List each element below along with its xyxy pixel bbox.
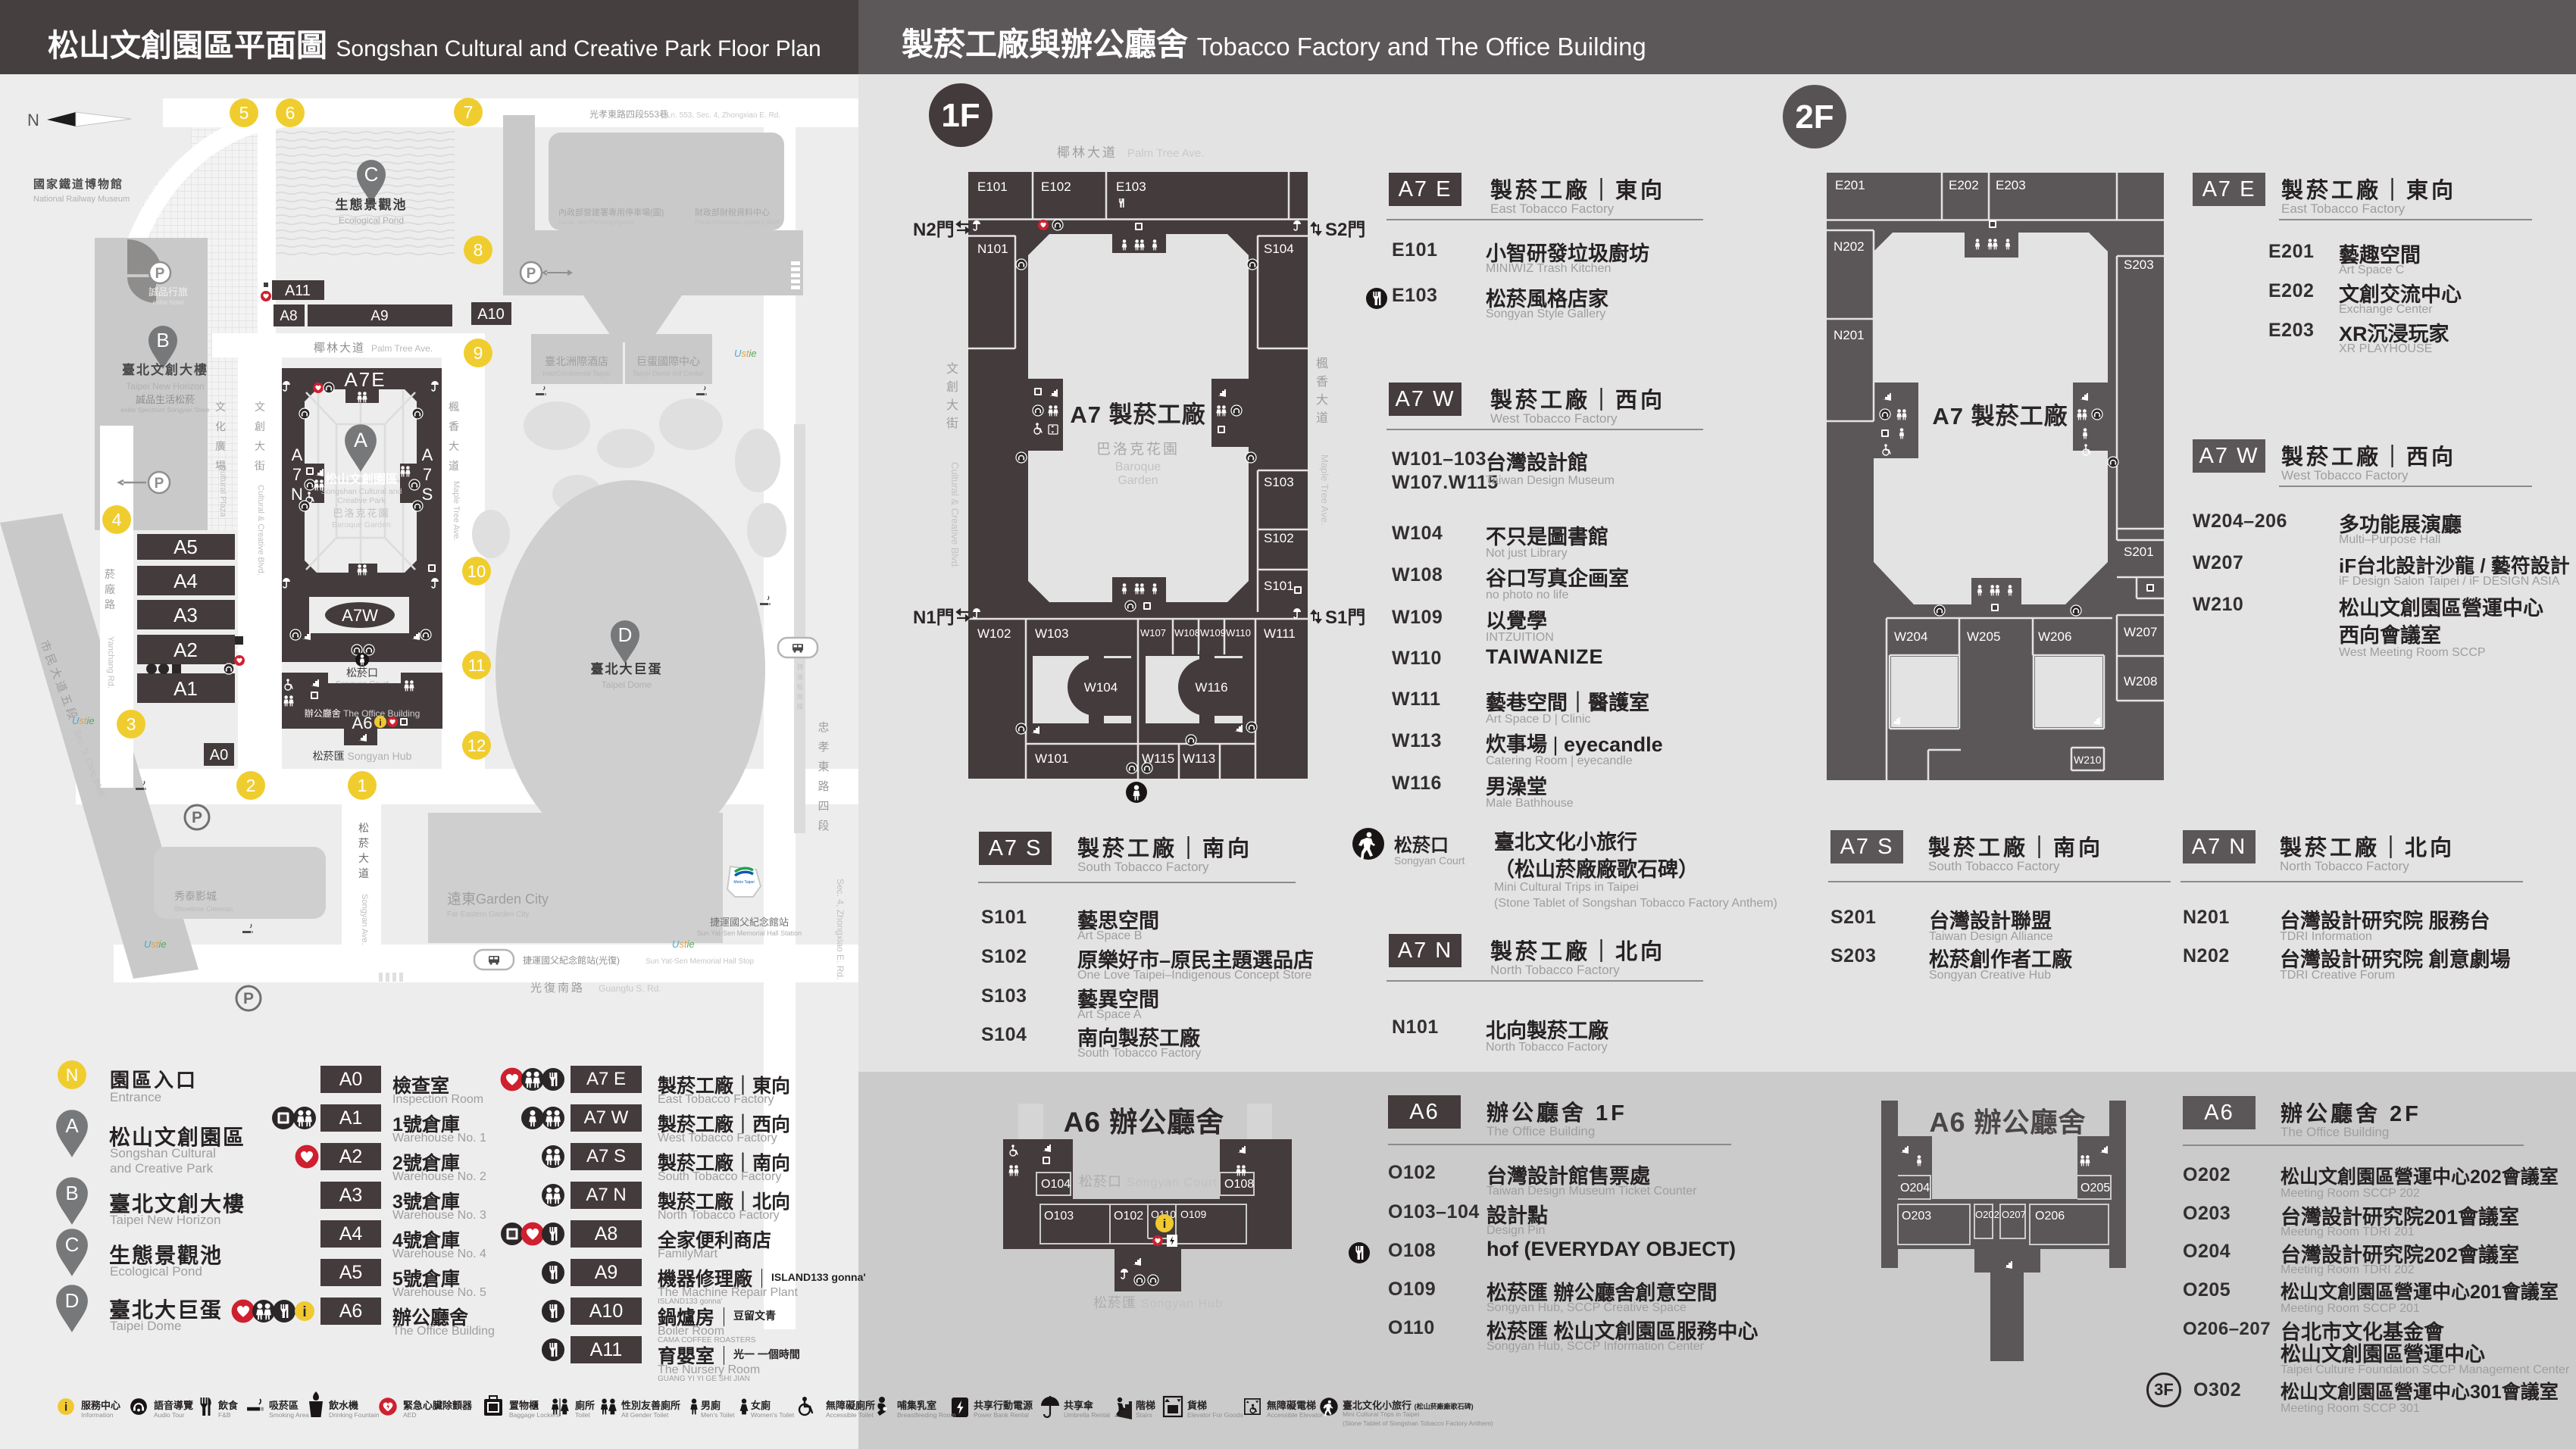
svg-text:Creative Park: Creative Park (337, 496, 386, 505)
svg-text:松菸匯 Songyan Hub: 松菸匯 Songyan Hub (313, 750, 412, 762)
svg-text:i: i (64, 1401, 67, 1413)
svg-text:捷: 捷 (796, 663, 803, 671)
svg-text:A: A (422, 445, 433, 464)
svg-text:大: 大 (1316, 393, 1328, 407)
svg-text:文: 文 (255, 401, 265, 413)
svg-text:C: C (364, 163, 379, 186)
svg-text:楓: 楓 (449, 401, 459, 413)
svg-text:Ustie: Ustie (72, 715, 95, 726)
svg-text:5: 5 (239, 103, 249, 123)
svg-text:E203: E203 (1996, 178, 2026, 192)
svg-text:2F: 2F (1795, 98, 1834, 136)
svg-text:Showtime Cinemas: Showtime Cinemas (174, 905, 233, 913)
svg-text:遠東Garden City: 遠東Garden City (447, 891, 549, 907)
svg-text:A7 製菸工廠: A7 製菸工廠 (1932, 403, 2068, 429)
svg-text:8: 8 (474, 240, 483, 260)
svg-text:Cultural & Creative Blvd.: Cultural & Creative Blvd. (949, 462, 961, 570)
svg-text:Cultural & Creative Blvd.: Cultural & Creative Blvd. (256, 485, 265, 576)
svg-text:Songshan Cultural and: Songshan Cultural and (321, 487, 402, 496)
svg-text:A7E: A7E (344, 368, 386, 391)
svg-text:A4: A4 (174, 570, 198, 592)
svg-text:O204: O204 (1900, 1182, 1930, 1194)
svg-text:臺北文創大樓: 臺北文創大樓 (122, 362, 208, 377)
svg-text:10: 10 (467, 562, 486, 581)
svg-text:Metro Taipei: Metro Taipei (733, 880, 754, 885)
svg-text:N101: N101 (977, 242, 1008, 256)
svg-text:A8: A8 (280, 308, 297, 324)
svg-text:文: 文 (215, 401, 226, 413)
svg-text:W204: W204 (1894, 629, 1927, 644)
svg-text:7: 7 (464, 102, 474, 122)
svg-text:香: 香 (449, 420, 459, 433)
svg-text:線: 線 (796, 702, 803, 710)
svg-text:道: 道 (358, 867, 369, 879)
svg-text:6: 6 (286, 103, 295, 123)
svg-text:4: 4 (112, 510, 122, 529)
svg-text:松: 松 (358, 822, 369, 834)
svg-text:臺北大巨蛋: 臺北大巨蛋 (591, 661, 663, 676)
svg-text:O108: O108 (1224, 1178, 1254, 1191)
svg-text:W102: W102 (977, 626, 1011, 641)
svg-text:W101: W101 (1035, 751, 1068, 766)
svg-text:Fiscal Information Agency, MOF: Fiscal Information Agency, MOF (695, 219, 780, 226)
svg-text:D: D (65, 1289, 80, 1312)
svg-text:A10: A10 (477, 306, 505, 323)
svg-text:Taipei New Horizon: Taipei New Horizon (126, 381, 204, 392)
svg-text:W109: W109 (1200, 627, 1226, 639)
svg-text:E201: E201 (1835, 178, 1865, 192)
svg-text:Maple Tree Ave.: Maple Tree Ave. (452, 481, 461, 541)
svg-text:O109: O109 (1180, 1208, 1206, 1220)
svg-text:Maple Tree Ave.: Maple Tree Ave. (1319, 454, 1330, 526)
svg-text:A: A (65, 1114, 79, 1137)
svg-text:A0: A0 (210, 747, 228, 764)
svg-text:誠品行旅: 誠品行旅 (148, 286, 188, 298)
svg-text:O104: O104 (1041, 1178, 1071, 1191)
svg-text:W116: W116 (1195, 680, 1227, 695)
svg-text:i: i (1163, 1216, 1167, 1231)
svg-text:椰林大道: 椰林大道 (314, 342, 365, 354)
svg-text:W107: W107 (1140, 627, 1166, 639)
svg-text:P: P (243, 990, 254, 1007)
svg-text:巨蛋國際中心: 巨蛋國際中心 (636, 355, 700, 367)
svg-text:文: 文 (946, 362, 958, 376)
svg-text:A6: A6 (352, 714, 373, 732)
svg-text:大: 大 (946, 398, 958, 412)
svg-text:N: N (66, 1065, 79, 1085)
svg-text:S101: S101 (1264, 579, 1294, 593)
svg-text:1: 1 (358, 776, 367, 795)
svg-text:i: i (302, 1304, 306, 1320)
svg-text:段: 段 (818, 820, 829, 832)
svg-text:S203: S203 (2124, 258, 2154, 272)
svg-text:Songyan Ave.: Songyan Ave. (360, 894, 369, 945)
svg-text:Baroque: Baroque (1115, 461, 1161, 473)
svg-text:道: 道 (1316, 411, 1328, 425)
svg-text:Ecological Pond: Ecological Pond (339, 215, 404, 226)
svg-text:A7 製菸工廠: A7 製菸工廠 (1070, 401, 1205, 428)
svg-text:W113: W113 (1183, 751, 1215, 766)
svg-text:W108: W108 (1174, 627, 1200, 639)
svg-text:N1門: N1門 (913, 607, 955, 628)
svg-text:12: 12 (467, 736, 486, 755)
svg-text:Baroque Garden: Baroque Garden (332, 520, 391, 529)
svg-text:N: N (27, 111, 39, 130)
svg-text:松菸口 Songyan Court: 松菸口 Songyan Court (1079, 1174, 1218, 1189)
svg-text:W207: W207 (2124, 625, 2157, 639)
svg-text:S2門: S2門 (1325, 220, 1365, 240)
svg-text:大: 大 (449, 440, 459, 452)
svg-text:誠品生活松菸: 誠品生活松菸 (136, 394, 195, 405)
svg-text:光復南路: 光復南路 (530, 982, 585, 995)
svg-text:Far Eastern Garden City: Far Eastern Garden City (447, 910, 529, 919)
svg-text:孝: 孝 (818, 741, 829, 754)
svg-text:A: A (354, 429, 367, 451)
svg-text:N202: N202 (1834, 239, 1865, 254)
svg-text:Sun Yat-Sen Memorial Hall Stat: Sun Yat-Sen Memorial Hall Station (697, 929, 802, 937)
svg-text:A2: A2 (174, 639, 198, 661)
svg-text:E202: E202 (1949, 178, 1979, 192)
svg-text:O202: O202 (1975, 1209, 1999, 1220)
svg-text:W205: W205 (1967, 629, 2000, 644)
svg-text:C: C (65, 1233, 80, 1256)
svg-text:路: 路 (105, 598, 115, 611)
svg-text:四: 四 (818, 800, 829, 813)
svg-text:O102: O102 (1114, 1210, 1143, 1223)
svg-text:巴洛克花園: 巴洛克花園 (333, 507, 389, 519)
svg-text:A5: A5 (174, 536, 198, 558)
svg-text:O103: O103 (1044, 1210, 1074, 1223)
svg-text:B: B (65, 1182, 78, 1204)
svg-text:運: 運 (796, 673, 803, 681)
svg-text:7: 7 (292, 465, 302, 484)
svg-text:椰林大道: 椰林大道 (1057, 145, 1118, 160)
svg-text:松山文創園區: 松山文創園區 (325, 472, 398, 486)
svg-text:P: P (192, 809, 202, 826)
svg-text:Palm Tree Ave.: Palm Tree Ave. (1127, 147, 1204, 160)
svg-text:Ln. 553, Sec. 4, Zhongxiao E.: Ln. 553, Sec. 4, Zhongxiao E. Rd. (667, 111, 780, 120)
svg-text:W111: W111 (1264, 626, 1296, 641)
svg-text:廠: 廠 (105, 583, 115, 595)
svg-text:生態景觀池: 生態景觀池 (336, 197, 408, 212)
svg-text:S1門: S1門 (1325, 607, 1365, 628)
svg-text:道: 道 (449, 460, 459, 472)
svg-text:大: 大 (255, 440, 265, 452)
svg-text:A3: A3 (174, 604, 198, 626)
svg-text:楓: 楓 (1316, 357, 1328, 370)
svg-text:路: 路 (818, 780, 829, 793)
svg-text:W208: W208 (2124, 674, 2157, 689)
svg-text:捷運國父紀念館站: 捷運國父紀念館站 (710, 917, 789, 928)
svg-text:7: 7 (423, 465, 432, 484)
svg-text:Ustie: Ustie (672, 938, 695, 950)
svg-text:S201: S201 (2124, 545, 2154, 559)
svg-text:S103: S103 (1264, 475, 1294, 489)
svg-text:Cultural Plaza: Cultural Plaza (218, 465, 227, 517)
svg-text:A1: A1 (174, 677, 198, 700)
svg-text:E102: E102 (1041, 180, 1071, 194)
svg-text:Ustie: Ustie (734, 348, 757, 359)
svg-text:創: 創 (255, 420, 265, 433)
svg-text:南: 南 (796, 692, 803, 701)
svg-text:香: 香 (1316, 375, 1328, 389)
svg-text:臺北洲際酒店: 臺北洲際酒店 (545, 355, 608, 367)
svg-text:Const. and Planning Agency: Const. and Planning Agency (558, 219, 635, 226)
svg-text:2: 2 (246, 776, 256, 795)
svg-text:11: 11 (468, 656, 486, 675)
svg-text:A: A (292, 445, 303, 464)
svg-text:3: 3 (127, 714, 136, 734)
svg-text:1F: 1F (941, 97, 980, 134)
svg-text:A7W: A7W (342, 606, 378, 625)
svg-text:國家鐵道博物館: 國家鐵道博物館 (33, 177, 123, 191)
svg-text:Palm Tree Ave.: Palm Tree Ave. (371, 343, 433, 354)
svg-text:A9: A9 (370, 308, 388, 324)
svg-text:菸: 菸 (105, 568, 115, 580)
svg-text:S102: S102 (1264, 531, 1294, 545)
svg-text:菸: 菸 (358, 837, 369, 849)
svg-text:松菸匯 Songyan Hub: 松菸匯 Songyan Hub (1093, 1295, 1223, 1310)
svg-text:廣: 廣 (215, 440, 226, 452)
svg-text:National Railway Museum: National Railway Museum (33, 195, 130, 204)
svg-text:財政部財稅資料中心: 財政部財稅資料中心 (695, 207, 770, 217)
svg-text:E101: E101 (977, 180, 1008, 194)
svg-text:化: 化 (215, 420, 226, 433)
svg-text:O205: O205 (2080, 1182, 2110, 1194)
svg-text:街: 街 (946, 417, 958, 430)
svg-text:W103: W103 (1035, 626, 1068, 641)
svg-text:東: 東 (818, 760, 829, 773)
svg-text:W210: W210 (2074, 754, 2102, 766)
svg-text:巴洛克花園: 巴洛克花園 (1096, 441, 1180, 457)
svg-text:A6 辦公廳舍: A6 辦公廳舍 (1064, 1106, 1225, 1138)
svg-text:Ustie: Ustie (144, 938, 167, 950)
svg-text:D: D (618, 623, 633, 646)
svg-text:eslite Spectrum Songyan Store: eslite Spectrum Songyan Store (120, 406, 209, 414)
svg-text:Garden: Garden (1118, 474, 1158, 487)
svg-text:eslite hotel: eslite hotel (153, 298, 184, 306)
svg-text:N2門: N2門 (913, 220, 955, 240)
svg-text:B: B (156, 329, 169, 351)
svg-text:O203: O203 (1902, 1210, 1931, 1223)
svg-text:街: 街 (255, 460, 265, 472)
svg-text:W110: W110 (1226, 627, 1251, 639)
svg-text:S: S (422, 485, 433, 504)
svg-text:Sec. 4, Zhongxiao E. Rd.: Sec. 4, Zhongxiao E. Rd. (835, 879, 846, 979)
svg-text:大: 大 (358, 852, 369, 864)
svg-text:9: 9 (474, 343, 483, 363)
svg-text:內政部營建署專用停車場(圖): 內政部營建署專用停車場(圖) (558, 207, 664, 217)
svg-text:Taipei Dome: Taipei Dome (602, 679, 652, 690)
svg-text:松菸口: 松菸口 (346, 667, 378, 679)
svg-text:創: 創 (946, 380, 958, 394)
svg-text:A6 辦公廳舍: A6 辦公廳舍 (1929, 1107, 2086, 1138)
svg-text:N201: N201 (1834, 328, 1865, 342)
svg-text:Yanchang Rd.: Yanchang Rd. (106, 636, 115, 689)
svg-text:E103: E103 (1116, 180, 1146, 194)
svg-text:W104: W104 (1084, 680, 1118, 695)
svg-text:光孝東路四段553巷: 光孝東路四段553巷 (589, 108, 668, 120)
svg-text:O207: O207 (2002, 1209, 2026, 1220)
svg-text:Sun Yat-Sen Memorial Hall Stop: Sun Yat-Sen Memorial Hall Stop (646, 957, 754, 966)
svg-text:O206: O206 (2035, 1210, 2065, 1223)
svg-text:板: 板 (796, 682, 803, 691)
svg-text:S104: S104 (1264, 242, 1294, 256)
svg-text:Guangfu S. Rd.: Guangfu S. Rd. (599, 983, 661, 994)
svg-text:W206: W206 (2038, 629, 2071, 644)
svg-text:N: N (291, 485, 303, 504)
svg-text:A11: A11 (285, 283, 311, 299)
svg-text:捷運國父紀念館站(光復): 捷運國父紀念館站(光復) (523, 954, 620, 966)
svg-text:Taipei Dome Intl Center: Taipei Dome Intl Center (633, 370, 704, 377)
svg-text:忠: 忠 (818, 721, 829, 734)
svg-text:秀泰影城: 秀泰影城 (174, 890, 217, 902)
svg-text:InterContinental Taipei: InterContinental Taipei (542, 370, 610, 377)
